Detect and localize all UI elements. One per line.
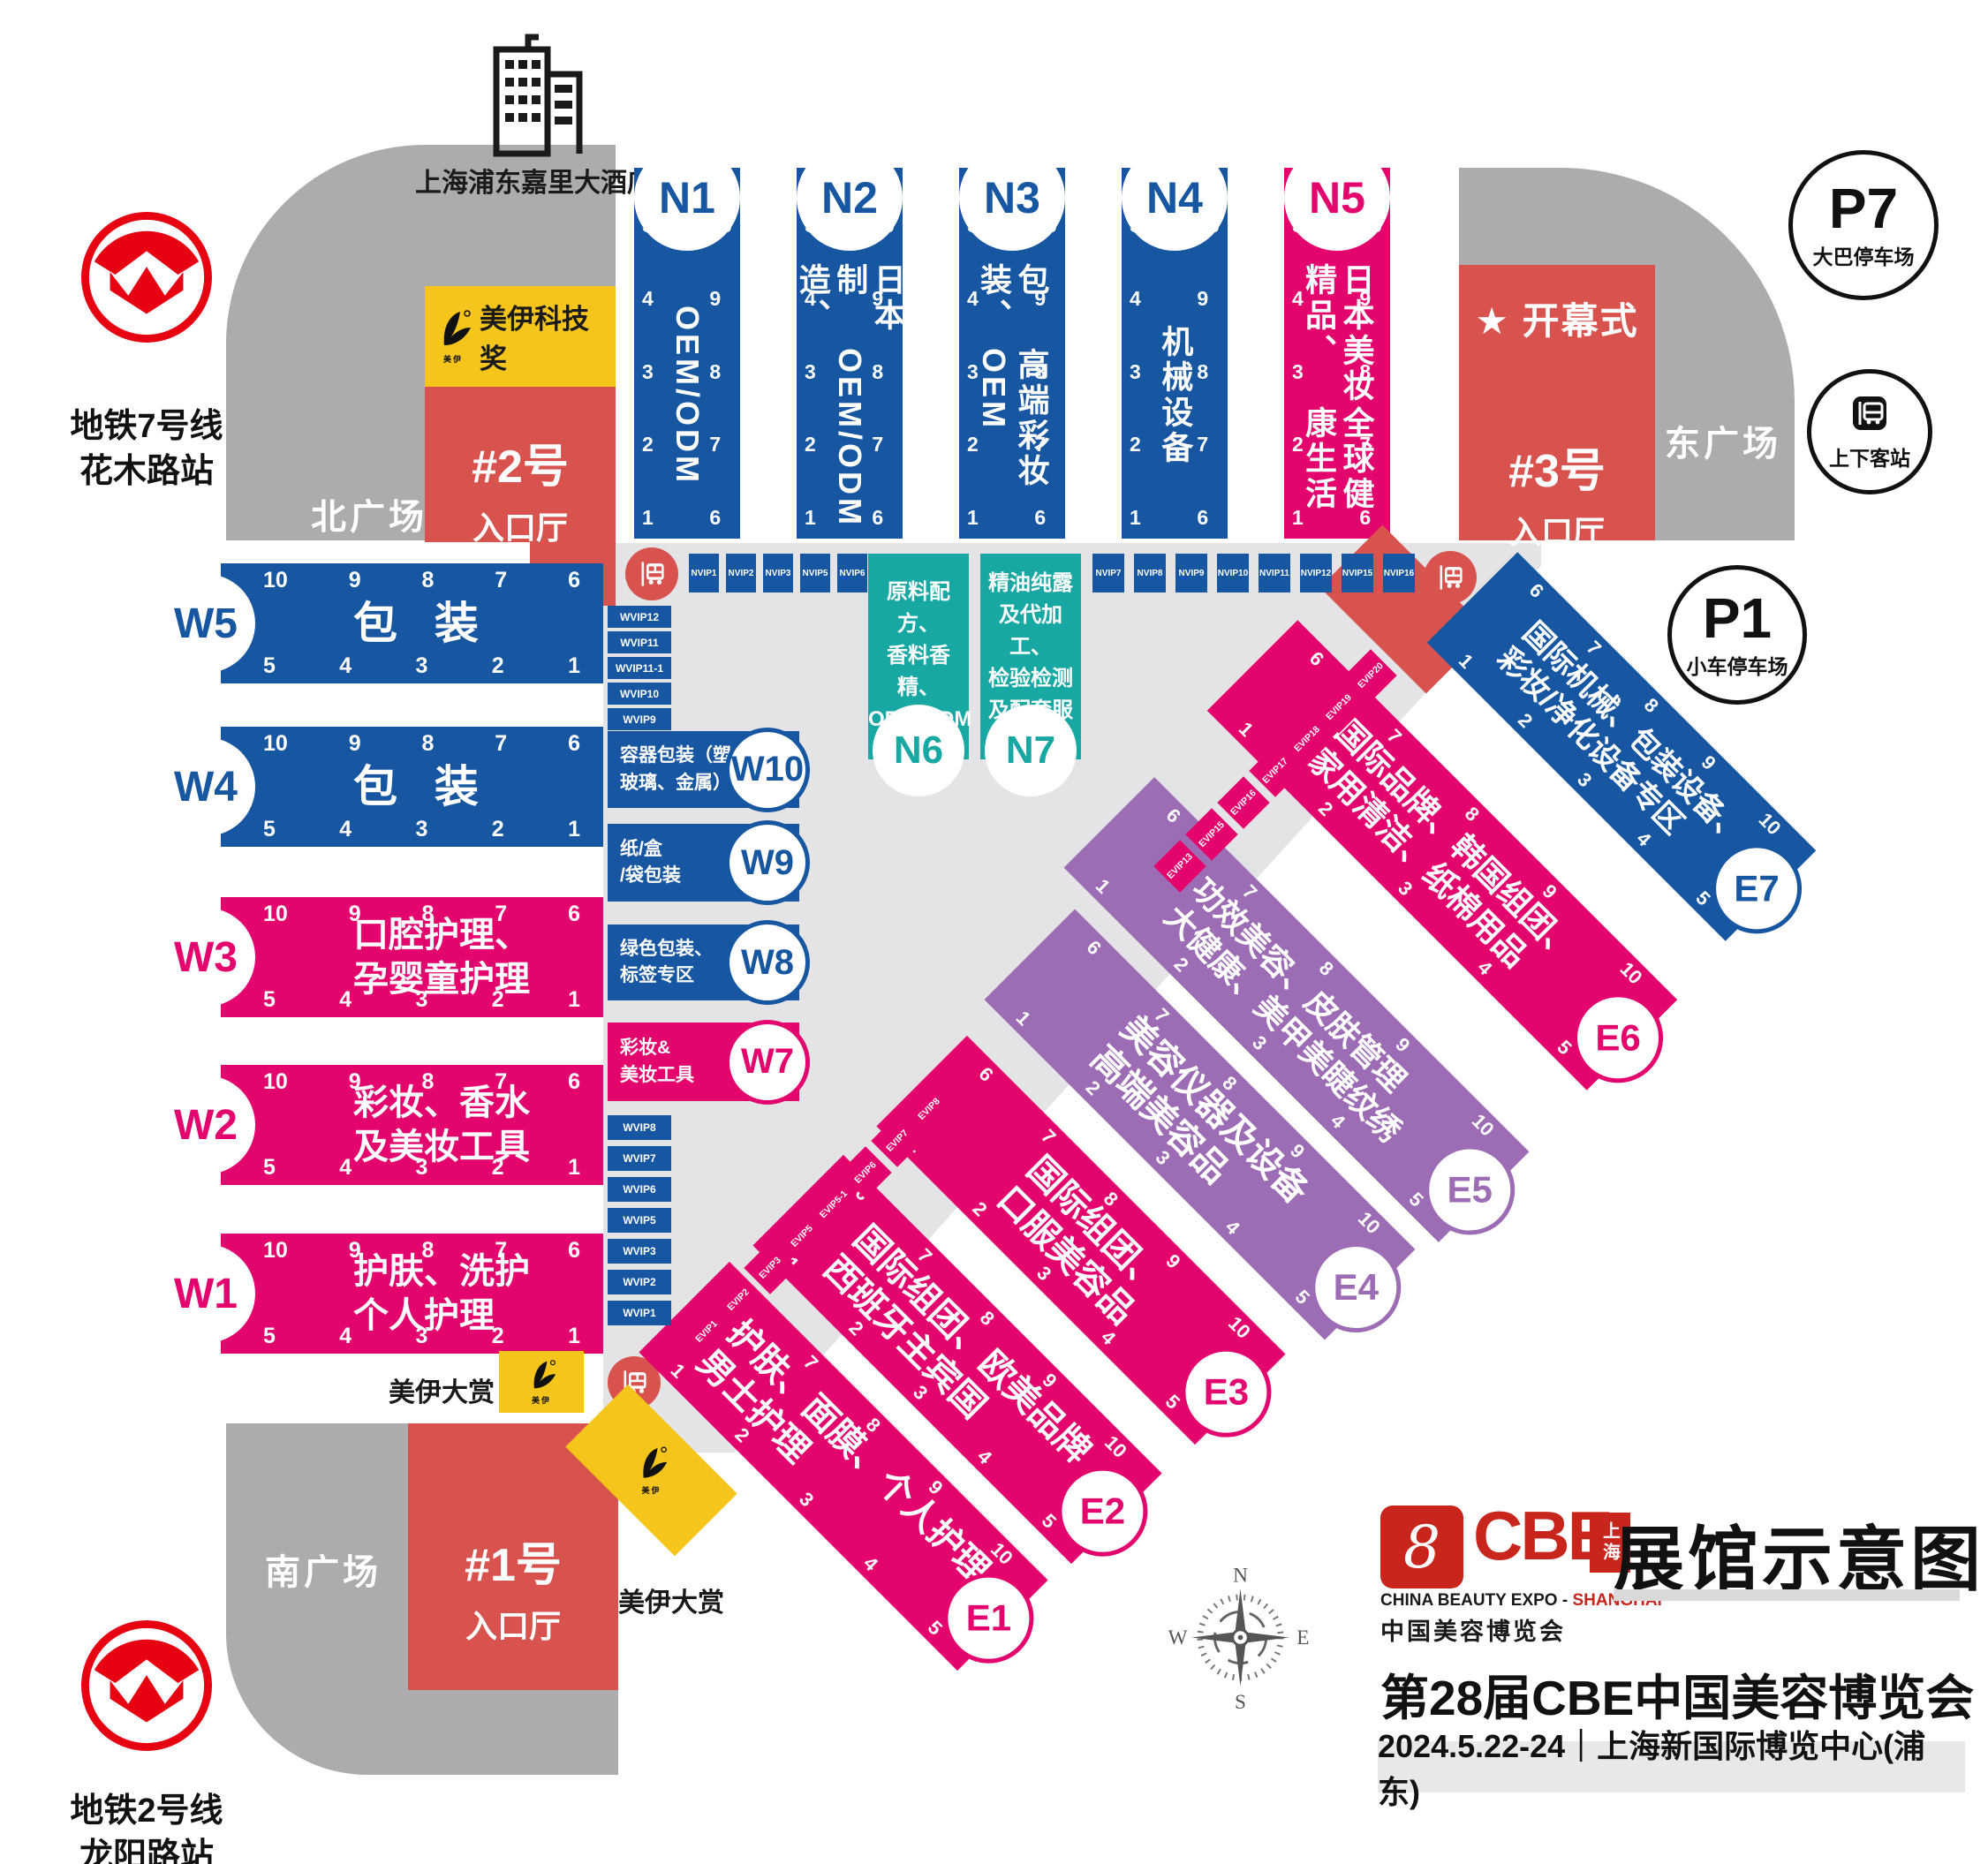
- cbe-logo-subtitle-cn: 中国美容博览会: [1380, 1612, 1566, 1647]
- meiyi-logo-icon: 美伊: [525, 1360, 557, 1405]
- svg-text:W: W: [1168, 1626, 1188, 1649]
- expo-title: 第28届CBE中国美容博览会: [1380, 1658, 1974, 1729]
- venue-map: 北广场 东广场 南广场 上海浦东嘉里大酒店: [0, 0, 1988, 1864]
- map-title-underline: [1614, 1589, 1960, 1601]
- meiyi-grand-award-label: 美伊大赏: [618, 1581, 724, 1619]
- svg-text:E: E: [1296, 1626, 1309, 1649]
- meiyi-grand-award-box: 美伊: [499, 1351, 584, 1413]
- cbe-logo-mark: 8: [1380, 1506, 1463, 1589]
- compass-rose: N E S W: [1168, 1565, 1313, 1710]
- date-venue-bar: 2024.5.22-24｜上海新国际博览中心(浦东): [1378, 1741, 1965, 1792]
- meiyi-grand-award-label: 美伊大赏: [389, 1370, 495, 1409]
- svg-text:S: S: [1235, 1691, 1246, 1710]
- svg-text:N: N: [1233, 1565, 1248, 1587]
- meiyi-logo-icon: 美伊: [634, 1446, 669, 1495]
